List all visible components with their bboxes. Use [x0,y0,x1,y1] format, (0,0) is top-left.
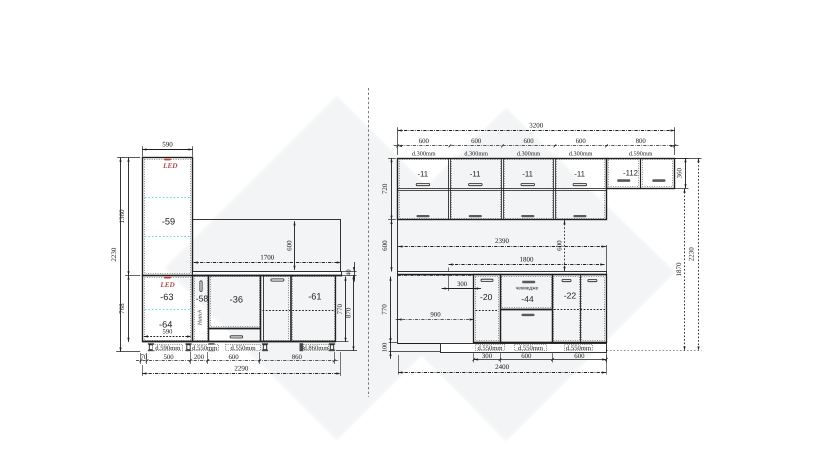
svg-text:d.300mm: d.300mm [569,150,593,157]
svg-text:600: 600 [574,353,585,360]
svg-text:870: 870 [345,307,353,318]
svg-text:3200: 3200 [529,122,544,130]
svg-text:768: 768 [118,303,126,314]
svg-text:-112: -112 [623,169,638,178]
svg-text:-58: -58 [196,294,209,304]
svg-text:600: 600 [471,138,482,145]
svg-text:70: 70 [141,354,148,361]
svg-text:300: 300 [457,281,468,288]
svg-text:-11: -11 [417,170,428,179]
svg-text:-59: -59 [162,216,175,226]
svg-text:-44: -44 [521,294,534,304]
svg-text:d.550mm: d.550mm [477,345,503,352]
svg-text:2390: 2390 [495,237,510,245]
svg-text:40: 40 [346,269,353,275]
svg-text:600: 600 [521,353,532,360]
svg-text:2230: 2230 [687,247,695,261]
svg-text:-11: -11 [522,170,533,179]
svg-text:1800: 1800 [520,255,535,263]
svg-text:-20: -20 [480,292,493,302]
svg-text:-11: -11 [574,170,585,179]
svg-text:800: 800 [636,138,647,145]
svg-text:1700: 1700 [260,253,275,261]
svg-text:600: 600 [381,240,389,251]
svg-text:600: 600 [555,240,563,251]
svg-text:2230: 2230 [110,247,118,262]
svg-text:600: 600 [576,138,587,145]
svg-text:100: 100 [381,343,388,353]
svg-text:2290: 2290 [234,364,249,372]
svg-text:770: 770 [336,303,344,314]
svg-text:300: 300 [482,353,493,360]
svg-text:360: 360 [676,168,684,179]
svg-text:500: 500 [163,354,174,361]
svg-text:-61: -61 [308,292,321,302]
svg-text:1360: 1360 [118,209,126,224]
svg-text:-11: -11 [470,170,481,179]
svg-text:770: 770 [380,304,388,315]
svg-text:d.550mm: d.550mm [518,345,544,352]
svg-text:d.300mm: d.300mm [464,150,488,157]
svg-text:d.590mm: d.590mm [629,150,653,157]
svg-text:720: 720 [381,183,389,194]
svg-text:600: 600 [419,138,430,145]
svg-text:d.590mm: d.590mm [155,345,181,352]
svg-text:чекмедже: чекмедже [516,286,539,292]
svg-text:Hatich: Hatich [198,310,204,326]
svg-text:d.550mm: d.550mm [192,345,218,352]
svg-text:d.300mm: d.300mm [412,150,436,157]
svg-text:-63: -63 [160,292,173,302]
svg-text:d.860mm: d.860mm [303,345,329,352]
svg-text:d.550mm: d.550mm [566,345,592,352]
svg-text:600: 600 [228,354,239,361]
svg-text:d.300mm: d.300mm [517,150,541,157]
svg-text:590: 590 [162,141,173,149]
svg-text:200: 200 [194,354,205,361]
svg-text:900: 900 [430,312,441,319]
svg-text:590: 590 [163,328,174,335]
svg-text:LED: LED [162,162,178,170]
svg-text:600: 600 [523,138,534,145]
svg-text:1870: 1870 [675,262,683,277]
svg-text:600: 600 [285,240,293,251]
svg-text:LED: LED [159,281,175,289]
svg-text:2400: 2400 [495,363,510,371]
svg-text:860: 860 [292,354,303,361]
svg-text:-22: -22 [564,291,577,301]
svg-text:d.550mm: d.550mm [231,345,257,352]
svg-text:-36: -36 [230,294,243,304]
